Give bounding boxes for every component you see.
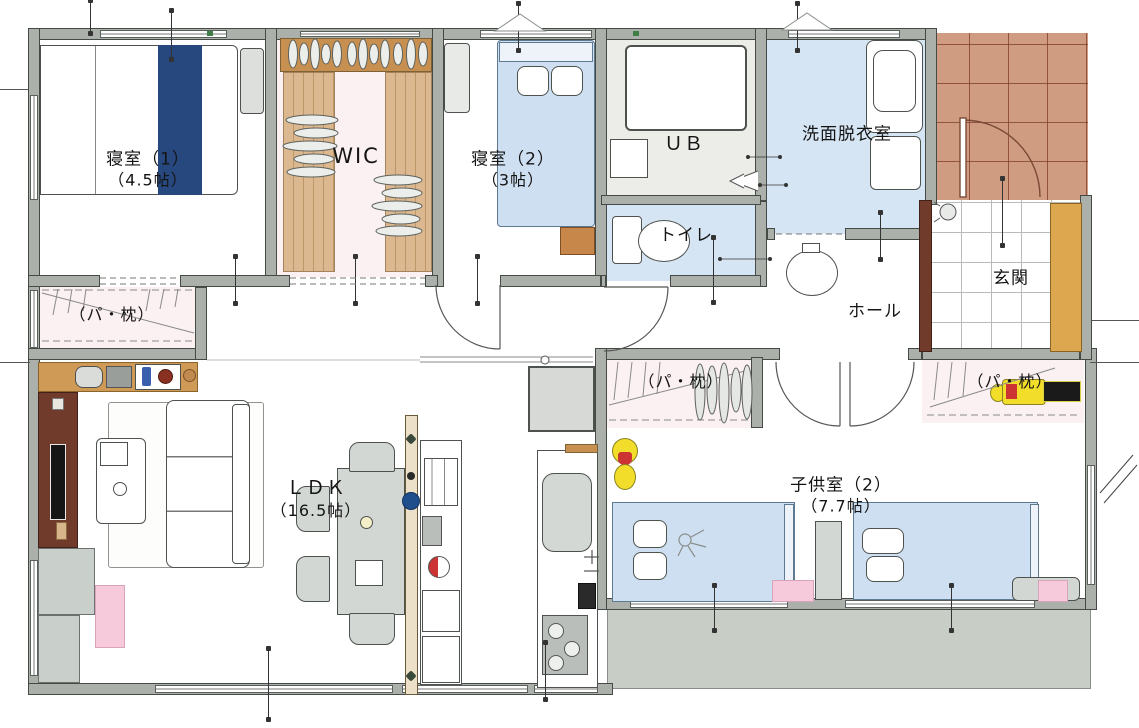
wall-bed1-wic: [265, 28, 277, 287]
wall-toilet-bottom-b: [670, 275, 761, 287]
bathtub: [625, 45, 747, 131]
kitchen-partition: [405, 415, 418, 695]
bedroom2-cabinet-tan: [560, 227, 595, 255]
dim-marker: [268, 648, 269, 720]
window-ldk-bottom-1: [155, 685, 393, 693]
stove-burner-2: [564, 641, 580, 657]
wall-washroom-right: [925, 28, 937, 205]
bed-single-bedroom2-headboard: [499, 42, 593, 62]
dim-marker: [477, 256, 478, 304]
room-name: 玄関: [993, 268, 1029, 288]
wic-rack-left: [283, 72, 335, 272]
room-name: 洗面脱衣室: [802, 124, 892, 144]
dining-chair-bottom: [349, 613, 395, 645]
room-name: 子供室（2）: [790, 475, 892, 495]
wall-toilet-bottom-a: [601, 275, 606, 287]
label-washroom: 洗面脱衣室: [802, 124, 892, 145]
wall-wic-bed2: [432, 28, 444, 287]
partition-ornament-mid: [407, 472, 415, 480]
sofa-backrest: [232, 404, 250, 564]
window-bedroom2-top: [480, 30, 592, 38]
dim-marker: [714, 585, 715, 631]
deck-floor: [607, 610, 1091, 689]
label-toilet: トイレ: [659, 225, 713, 246]
dim-marker: [171, 10, 172, 60]
bed-double-fold-line: [95, 46, 96, 194]
tv-board-item-bottom: [56, 522, 67, 540]
label-hall: ホール: [848, 301, 902, 322]
kitchen-counter-line: [207, 356, 593, 364]
label-kids-room: 子供室（2） （7.7帖）: [790, 475, 892, 516]
label-bedroom2: 寝室（2） （3帖）: [471, 149, 555, 190]
room-size: （7.7帖）: [790, 497, 892, 517]
tv-screen: [50, 444, 66, 520]
wall-ub-toilet: [601, 195, 761, 205]
kids-bed-b-pillow-2: [866, 556, 904, 582]
wall-ub-washroom: [755, 28, 767, 201]
dim-marker: [713, 237, 714, 303]
label-ldk: ＬＤＫ （16.5帖）: [271, 477, 362, 521]
dim-extension-line: [1090, 362, 1139, 363]
bedroom2-pillow-1: [517, 66, 549, 96]
porch-tile-floor: [931, 33, 1088, 200]
vent-dot-1: [207, 31, 213, 36]
room-name: （パ・枕）: [638, 372, 723, 391]
kettle: [428, 556, 450, 578]
counter-item-dark: [106, 366, 132, 388]
wall-corridor-top-a: [28, 275, 100, 287]
room-name: 寝室（2）: [471, 149, 555, 169]
wall-bed2-ub: [595, 28, 607, 287]
dim-marker: [90, 0, 91, 34]
dining-table-placemat: [355, 560, 383, 586]
sewing-wheel-red: [158, 369, 173, 384]
wall-closet-a-right: [751, 357, 763, 428]
kids-desk: [815, 521, 842, 600]
hall-washbasin: [786, 250, 838, 296]
label-bedroom1: 寝室（1） （4.5帖）: [106, 149, 190, 190]
refrigerator: [528, 366, 595, 432]
tv-board-item-top: [52, 398, 64, 410]
dim-extension-line: [0, 362, 30, 363]
label-wic: WIC: [332, 143, 380, 169]
counter-item-gray: [75, 366, 103, 388]
kids-door-left-arc: [776, 362, 840, 426]
partition-vase-blue: [402, 492, 420, 510]
label-entrance: 玄関: [993, 268, 1029, 289]
room-name: （パ・枕）: [967, 372, 1052, 391]
room-name: ＵＢ: [664, 133, 704, 155]
toilet-door-arc: [604, 287, 668, 351]
room-name: ＬＤＫ: [286, 477, 346, 499]
counter-appliance-gray: [422, 516, 442, 546]
dim-marker: [1002, 178, 1003, 246]
piano-upper: [38, 548, 95, 615]
dim-marker: [355, 256, 356, 304]
bedroom2-chest: [444, 43, 470, 113]
wall-closet-left-bottom: [28, 348, 207, 360]
coffee-table-tray: [100, 442, 128, 466]
kids-bed-a-pillow-1: [633, 520, 667, 548]
coffee-table-cup: [113, 482, 127, 496]
slope-marks: [1100, 455, 1137, 503]
wall-closet-left-right: [195, 287, 207, 360]
piano-lower: [38, 615, 80, 683]
bedroom2-pillow-2: [551, 66, 583, 96]
stove-burner-3: [548, 655, 564, 671]
hall-washbasin-faucet: [802, 243, 820, 253]
wall-washroom-bottom-b: [845, 228, 925, 240]
dining-chair-left-2: [296, 556, 330, 602]
dining-chair-top: [349, 442, 395, 472]
counter-drawer-2: [422, 636, 460, 683]
ldk-pink-mat: [95, 585, 125, 648]
entrance-step-wall: [919, 200, 932, 352]
kids-bed-b-pillow-1: [862, 528, 904, 554]
window-wic-top: [300, 31, 420, 37]
dim-extension-line: [1092, 320, 1139, 321]
window-kids-bottom-2: [845, 600, 1035, 608]
window-washroom-top: [788, 30, 900, 38]
window-closet-left: [30, 290, 38, 348]
window-kids-right: [1087, 465, 1095, 585]
room-name: （パ・枕）: [69, 305, 154, 324]
kids-pink-mat-b: [1038, 580, 1068, 602]
closet-kids-a-floor: [607, 357, 751, 428]
room-name: 寝室（1）: [106, 149, 190, 169]
washroom-vanity-bowl: [873, 50, 916, 112]
wic-rack-right: [385, 72, 432, 272]
kitchen-sink: [542, 473, 592, 552]
room-name: ホール: [848, 301, 902, 321]
label-closet-kids-a: （パ・枕）: [638, 372, 723, 392]
dim-marker: [797, 3, 798, 51]
wall-corridor-top-c: [425, 275, 438, 287]
bath-counter: [610, 139, 648, 178]
kids-pink-mat-a: [772, 580, 814, 602]
wall-washroom-bottom-a: [767, 228, 775, 240]
sewing-machine-blue: [142, 367, 151, 386]
dim-marker: [545, 642, 546, 700]
stove-burner-1: [548, 623, 564, 639]
window-ldk-left: [30, 560, 38, 676]
room-name: WIC: [332, 144, 380, 168]
kids-door-right-arc: [850, 362, 914, 426]
kids-bed-a-pillow-2: [633, 552, 667, 580]
dim-marker: [951, 585, 952, 631]
window-bedroom1-left: [30, 95, 38, 200]
window-ldk-bottom-2: [402, 685, 528, 693]
dim-marker: [880, 212, 881, 260]
room-size: （3帖）: [471, 171, 555, 191]
vent-dot-2: [633, 31, 639, 36]
counter-item-knob: [183, 369, 196, 382]
dim-extension-line: [0, 89, 28, 90]
bedside-cabinet: [240, 48, 264, 114]
label-closet-kids-b: （パ・枕）: [967, 372, 1052, 392]
bedroom2-door-arc: [436, 285, 500, 349]
dim-marker: [518, 3, 519, 51]
dish-rack: [578, 583, 596, 609]
wall-corridor-top-d: [500, 275, 601, 287]
room-size: （16.5帖）: [271, 501, 362, 521]
room-size: （4.5帖）: [106, 171, 190, 191]
floor-plan: 寝室（1） （4.5帖） WIC 寝室（2） （3帖） ＵＢ 洗面脱衣室 トイレ…: [0, 0, 1139, 728]
microwave: [424, 458, 458, 506]
counter-drawer-1: [422, 590, 460, 632]
wic-top-shelf: [280, 38, 432, 72]
label-unit-bath: ＵＢ: [664, 133, 704, 157]
dim-marker: [235, 256, 236, 304]
label-closet-left: （パ・枕）: [69, 305, 154, 325]
child-toy-body: [614, 464, 636, 490]
room-name: トイレ: [659, 225, 713, 245]
dining-pendant-light: [360, 516, 373, 529]
shoe-cabinet: [1050, 203, 1082, 352]
kitchen-spice-shelf: [565, 444, 598, 453]
